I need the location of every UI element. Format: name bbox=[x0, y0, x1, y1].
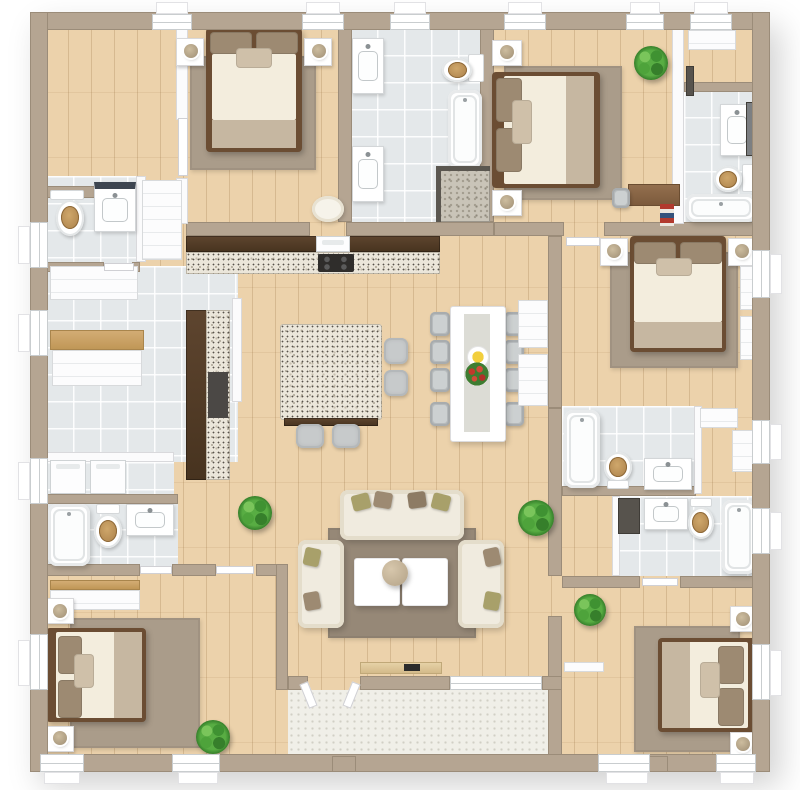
potted-plant bbox=[196, 720, 230, 754]
window bbox=[752, 644, 770, 700]
toilet-seat bbox=[692, 512, 709, 533]
vanity-sink bbox=[126, 504, 174, 536]
window-sill bbox=[156, 2, 188, 14]
cushion bbox=[303, 591, 322, 612]
dining-chair bbox=[430, 368, 450, 392]
vanity-sink bbox=[352, 146, 384, 202]
kitchen-side-cabinets bbox=[186, 310, 208, 480]
bed-pillow bbox=[718, 688, 744, 726]
console-item bbox=[404, 664, 420, 671]
cooktop bbox=[318, 254, 354, 272]
patio-pier bbox=[332, 756, 356, 772]
table-lamp bbox=[53, 731, 67, 745]
wall bbox=[548, 408, 562, 576]
toilet-tank bbox=[607, 480, 629, 489]
closet bbox=[518, 354, 548, 406]
window-sill bbox=[770, 254, 782, 294]
kitchen-island bbox=[280, 324, 382, 420]
toilet-seat bbox=[609, 457, 627, 477]
cushion bbox=[483, 591, 502, 612]
desk-chair bbox=[612, 188, 630, 208]
wall bbox=[276, 564, 288, 690]
bathtub bbox=[564, 410, 600, 488]
bed-blanket bbox=[634, 322, 722, 348]
window-sill bbox=[178, 772, 218, 784]
bed-blanket bbox=[212, 120, 296, 148]
door bbox=[216, 566, 254, 574]
window bbox=[30, 458, 48, 504]
walk-in-shower bbox=[436, 166, 490, 222]
window-sill bbox=[720, 772, 754, 784]
wall bbox=[680, 576, 756, 588]
window-sill bbox=[508, 2, 542, 14]
window-sill bbox=[606, 772, 648, 784]
window bbox=[450, 676, 542, 690]
bed-pillow bbox=[700, 662, 720, 698]
door bbox=[566, 237, 600, 246]
table-lamp bbox=[500, 45, 514, 59]
window bbox=[390, 14, 430, 30]
bathtub bbox=[448, 90, 482, 168]
door bbox=[104, 263, 134, 271]
washer bbox=[50, 460, 86, 494]
table-lamp bbox=[312, 44, 326, 58]
vanity-sink bbox=[644, 458, 692, 490]
pendant-ball bbox=[382, 560, 408, 586]
bathtub bbox=[686, 194, 756, 222]
window bbox=[690, 14, 732, 30]
wall bbox=[542, 676, 562, 690]
kitchen-counter-granite bbox=[186, 252, 440, 274]
window bbox=[752, 420, 770, 464]
toilet-seat bbox=[99, 520, 117, 542]
table-lamp bbox=[736, 737, 750, 751]
bed-blanket bbox=[114, 632, 142, 718]
bed-pillow bbox=[74, 654, 94, 688]
cushion bbox=[482, 547, 501, 568]
toilet-seat bbox=[61, 206, 79, 229]
bench-base bbox=[52, 350, 142, 386]
bed-pillow bbox=[656, 258, 692, 276]
window bbox=[152, 14, 192, 30]
wall bbox=[548, 236, 562, 408]
wall bbox=[186, 222, 310, 236]
bed-pillow bbox=[512, 100, 532, 144]
window bbox=[30, 634, 48, 690]
wall bbox=[338, 28, 352, 222]
door bbox=[140, 566, 172, 574]
desk bbox=[628, 184, 680, 206]
table-lamp bbox=[607, 244, 621, 258]
bench-top bbox=[50, 330, 144, 350]
floor-patio bbox=[288, 690, 560, 754]
window-sill bbox=[18, 640, 30, 686]
window-sill bbox=[44, 772, 80, 784]
window bbox=[752, 250, 770, 298]
door bbox=[642, 578, 678, 586]
window bbox=[598, 754, 650, 772]
wall bbox=[46, 494, 178, 504]
closet bbox=[142, 180, 182, 260]
bar-stool bbox=[384, 370, 408, 396]
window bbox=[302, 14, 344, 30]
coffee-table bbox=[402, 558, 448, 606]
potted-plant bbox=[238, 496, 272, 530]
window-sill bbox=[770, 650, 782, 696]
dining-chair bbox=[430, 340, 450, 364]
floor-plan bbox=[0, 0, 800, 790]
table-lamp bbox=[736, 612, 750, 626]
dryer bbox=[90, 460, 126, 494]
table-lamp bbox=[735, 244, 749, 258]
potted-plant bbox=[518, 500, 554, 536]
entry-cabinets bbox=[50, 266, 138, 300]
bar-stool bbox=[296, 424, 324, 448]
table-lamp bbox=[184, 44, 198, 58]
window-sill bbox=[630, 2, 660, 14]
window-sill bbox=[394, 2, 426, 14]
dresser-top bbox=[50, 580, 140, 590]
oven bbox=[316, 236, 350, 252]
round-pouf bbox=[312, 196, 344, 222]
closet bbox=[518, 300, 548, 348]
bed-pillow bbox=[236, 48, 272, 68]
bar-stool bbox=[384, 338, 408, 364]
potted-plant bbox=[634, 46, 668, 80]
vanity-sink bbox=[352, 38, 384, 94]
wall-shelf bbox=[564, 662, 604, 672]
toilet-tank bbox=[96, 504, 120, 514]
window-sill bbox=[770, 512, 782, 550]
window bbox=[30, 310, 48, 356]
wall-panel bbox=[686, 66, 694, 96]
window bbox=[752, 508, 770, 554]
window-sill bbox=[18, 226, 30, 264]
window bbox=[716, 754, 756, 772]
wall bbox=[494, 222, 564, 236]
bed-pillow bbox=[718, 646, 744, 684]
bathtub bbox=[722, 500, 756, 574]
bathtub bbox=[48, 504, 90, 566]
bar-stool bbox=[332, 424, 360, 448]
wall bbox=[346, 222, 494, 236]
potted-plant bbox=[574, 594, 606, 626]
window-sill bbox=[18, 314, 30, 352]
toilet-seat bbox=[719, 171, 737, 188]
wall bbox=[360, 676, 450, 690]
bed-blanket bbox=[662, 642, 690, 728]
table-lamp bbox=[53, 604, 67, 618]
window bbox=[504, 14, 546, 30]
shelf bbox=[618, 498, 640, 534]
wall bbox=[684, 82, 756, 92]
wall bbox=[562, 576, 640, 588]
window bbox=[30, 222, 48, 268]
wall bbox=[604, 222, 754, 236]
window-sill bbox=[306, 2, 340, 14]
toilet-tank bbox=[50, 190, 84, 200]
console-table bbox=[360, 662, 442, 674]
table-lamp bbox=[500, 195, 514, 209]
window bbox=[172, 754, 220, 772]
cushion bbox=[373, 491, 394, 510]
books bbox=[660, 204, 674, 226]
dining-chair bbox=[430, 402, 450, 426]
wall bbox=[172, 564, 216, 576]
cushion bbox=[407, 491, 427, 509]
window bbox=[40, 754, 84, 772]
closet bbox=[688, 30, 736, 50]
toilet-seat bbox=[448, 62, 467, 78]
kitchen-sink-inset bbox=[208, 372, 228, 418]
window-sill bbox=[694, 2, 728, 14]
window bbox=[626, 14, 664, 30]
dresser bbox=[732, 430, 754, 472]
wall-partition bbox=[232, 298, 242, 402]
kitchen-counter-cabinets bbox=[186, 236, 440, 252]
vanity-sink bbox=[644, 498, 688, 530]
window-sill bbox=[770, 424, 782, 460]
door bbox=[178, 118, 188, 176]
flower-bouquet bbox=[464, 362, 490, 386]
toilet-tank bbox=[690, 498, 712, 507]
vanity-sink bbox=[94, 182, 136, 232]
window-sill bbox=[18, 462, 30, 500]
bed-blanket bbox=[566, 76, 594, 184]
dining-chair bbox=[430, 312, 450, 336]
dresser bbox=[700, 408, 738, 428]
